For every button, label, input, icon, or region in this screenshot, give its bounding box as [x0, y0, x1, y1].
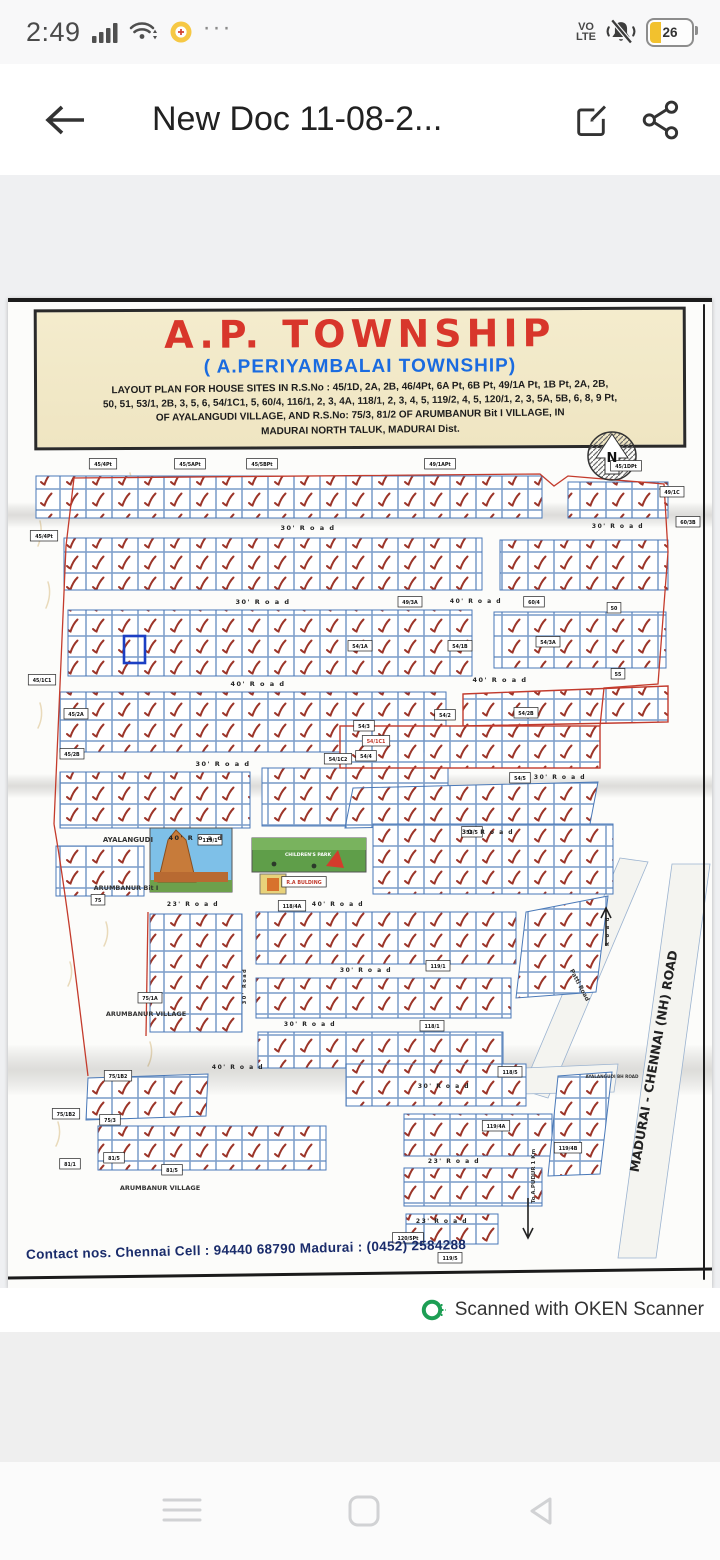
road-label: 30' R o a d — [284, 1021, 336, 1028]
signal-strength-icon — [91, 19, 119, 45]
wifi-icon — [129, 19, 159, 45]
survey-number-label: 45/2B — [64, 752, 80, 758]
road-label: 30' R o a d — [280, 524, 335, 532]
survey-number-label: 54/3 — [358, 724, 370, 730]
survey-number-label: 54/5 — [514, 776, 526, 782]
back-nav-button[interactable] — [526, 1495, 558, 1527]
road-label: 23' R o a d — [167, 901, 219, 908]
home-nav-button[interactable] — [347, 1494, 381, 1528]
scanned-page: A.P. TOWNSHIP ( A.PERIYAMBALAI TOWNSHIP)… — [8, 298, 712, 1288]
road-label: 30' R o a d — [235, 598, 290, 606]
survey-number-label: 118/5 — [502, 1070, 517, 1076]
survey-number-label: 55 — [615, 672, 622, 678]
road-label: R o a d — [605, 916, 611, 946]
survey-number-label: 118/1 — [424, 1024, 439, 1030]
scan-preview[interactable]: A.P. TOWNSHIP ( A.PERIYAMBALAI TOWNSHIP)… — [0, 175, 720, 1332]
more-notifications-icon: ··· — [203, 16, 233, 48]
android-nav-bar — [0, 1462, 720, 1560]
area-label: ARUMBANUR Bit I — [94, 884, 159, 892]
survey-number-label: 119/1 — [430, 964, 445, 970]
menu-nav-button[interactable] — [162, 1497, 202, 1525]
back-arrow-icon — [42, 103, 88, 137]
share-button[interactable] — [626, 85, 696, 155]
survey-number-label: 54/1C2 — [329, 757, 348, 763]
road-label: 30' R o a d — [340, 967, 392, 974]
survey-number-label: 45/5BPt — [251, 462, 273, 468]
clock-time: 2:49 — [26, 17, 81, 48]
notification-app-icon — [169, 20, 193, 44]
road-label: 40' R o a d — [312, 901, 364, 908]
survey-number-label: 49/1C — [664, 490, 680, 496]
area-label: AYALANGUDI — [103, 836, 153, 844]
survey-number-label: 75/3 — [104, 1118, 116, 1124]
survey-number-label: 54/2 — [439, 713, 451, 719]
road-label: 30' R o a d — [534, 774, 586, 781]
road-label: 40' R o a d — [168, 834, 223, 842]
area-label: N — [607, 451, 618, 466]
scanner-badge-text: Scanned with OKEN Scanner — [455, 1299, 704, 1321]
plan-subtitle: ( A.PERIYAMBALAI TOWNSHIP) — [43, 355, 677, 380]
phone-screen: 2:49 ··· VO — [0, 0, 720, 1560]
battery-percent: 26 — [648, 20, 692, 45]
survey-number-label: 50 — [611, 606, 618, 612]
edit-icon — [572, 101, 610, 139]
area-label: To A.PUDUR 1 Km — [531, 1148, 537, 1203]
road-label: 30' R o a d — [195, 760, 250, 768]
road-label: 23' R o a d — [416, 1218, 468, 1225]
back-button[interactable] — [30, 85, 100, 155]
survey-number-label: 45/2A — [68, 712, 84, 718]
survey-number-label: 60/4 — [528, 600, 540, 606]
survey-number-label: 60/3B — [680, 520, 696, 526]
plan-title: A.P. TOWNSHIP — [43, 314, 677, 357]
road-label: 23' R o a d — [428, 1158, 480, 1165]
road-label: 40' R o a d — [230, 680, 285, 688]
survey-number-label: 54/1A — [352, 644, 368, 650]
area-label: CHILDREN'S PARK — [285, 852, 332, 858]
survey-number-label: 54/4 — [360, 754, 372, 760]
survey-number-label: 45/1C1 — [33, 678, 52, 684]
survey-number-label: 75/1B2 — [57, 1112, 76, 1118]
survey-number-label: 75/1B2 — [109, 1074, 128, 1080]
road-label: 30' R o a d — [592, 523, 644, 530]
share-icon — [640, 99, 682, 141]
survey-number-label: 119/4B — [559, 1146, 578, 1152]
road-label: 30' Road — [242, 968, 248, 1004]
battery-indicator: 26 — [646, 18, 694, 47]
survey-number-label: 81/1 — [64, 1162, 76, 1168]
survey-number-label: 54/2B — [518, 711, 534, 717]
survey-number-label: 54/1C1 — [367, 739, 386, 745]
mute-vibrate-icon — [606, 18, 636, 46]
survey-number-label: 45/1DPt — [615, 464, 637, 470]
survey-number-label: 118/4A — [283, 904, 302, 910]
road-label: 40' R o a d — [212, 1064, 264, 1071]
survey-number-label: 45/4Pt — [94, 462, 112, 468]
township-map: 45/4Pt45/5APt45/5BPt49/1APt45/1DPt49/1C6… — [8, 426, 712, 1284]
volte-indicator: VO LTE — [576, 22, 596, 43]
survey-number-label: 54/3A — [540, 640, 556, 646]
paper-bottom-edge — [8, 1269, 712, 1278]
road-label: 30' R o a d — [462, 829, 514, 836]
survey-number-label: 45/4Pt — [35, 534, 53, 540]
township-map-svg: 45/4Pt45/5APt45/5BPt49/1APt45/1DPt49/1C6… — [8, 426, 712, 1284]
survey-number-label: 75 — [95, 898, 102, 904]
survey-number-label: 54/1B — [452, 644, 468, 650]
survey-number-label: 119/4A — [487, 1124, 506, 1130]
app-bar: New Doc 11-08-2... — [0, 64, 720, 175]
document-title: New Doc 11-08-2... — [152, 100, 556, 139]
survey-number-label: 49/1APt — [429, 462, 451, 468]
oken-scanner-logo — [420, 1297, 446, 1323]
survey-number-label: R.A BULDING — [286, 880, 321, 886]
scanner-badge-row: Scanned with OKEN Scanner — [0, 1288, 720, 1332]
survey-number-label: 81/5 — [166, 1168, 178, 1174]
road-label: 40' R o a d — [450, 598, 502, 605]
status-bar: 2:49 ··· VO — [0, 0, 720, 64]
rename-button[interactable] — [556, 85, 626, 155]
area-label: ARUMBANUR VILLAGE — [106, 1010, 186, 1018]
road-label: 40' R o a d — [472, 676, 527, 684]
survey-number-label: 49/3A — [402, 600, 418, 606]
survey-number-label: 75/1A — [142, 996, 158, 1002]
area-label: ARUMBANUR VILLAGE — [120, 1184, 200, 1192]
viewer-background — [0, 1332, 720, 1462]
area-label: AYALANGUDI BH ROAD — [586, 1074, 640, 1079]
survey-number-label: 119/5 — [442, 1256, 457, 1262]
survey-number-label: 81/5 — [108, 1156, 120, 1162]
road-label: 30' R o a d — [418, 1083, 470, 1090]
survey-number-label: 45/5APt — [179, 462, 201, 468]
